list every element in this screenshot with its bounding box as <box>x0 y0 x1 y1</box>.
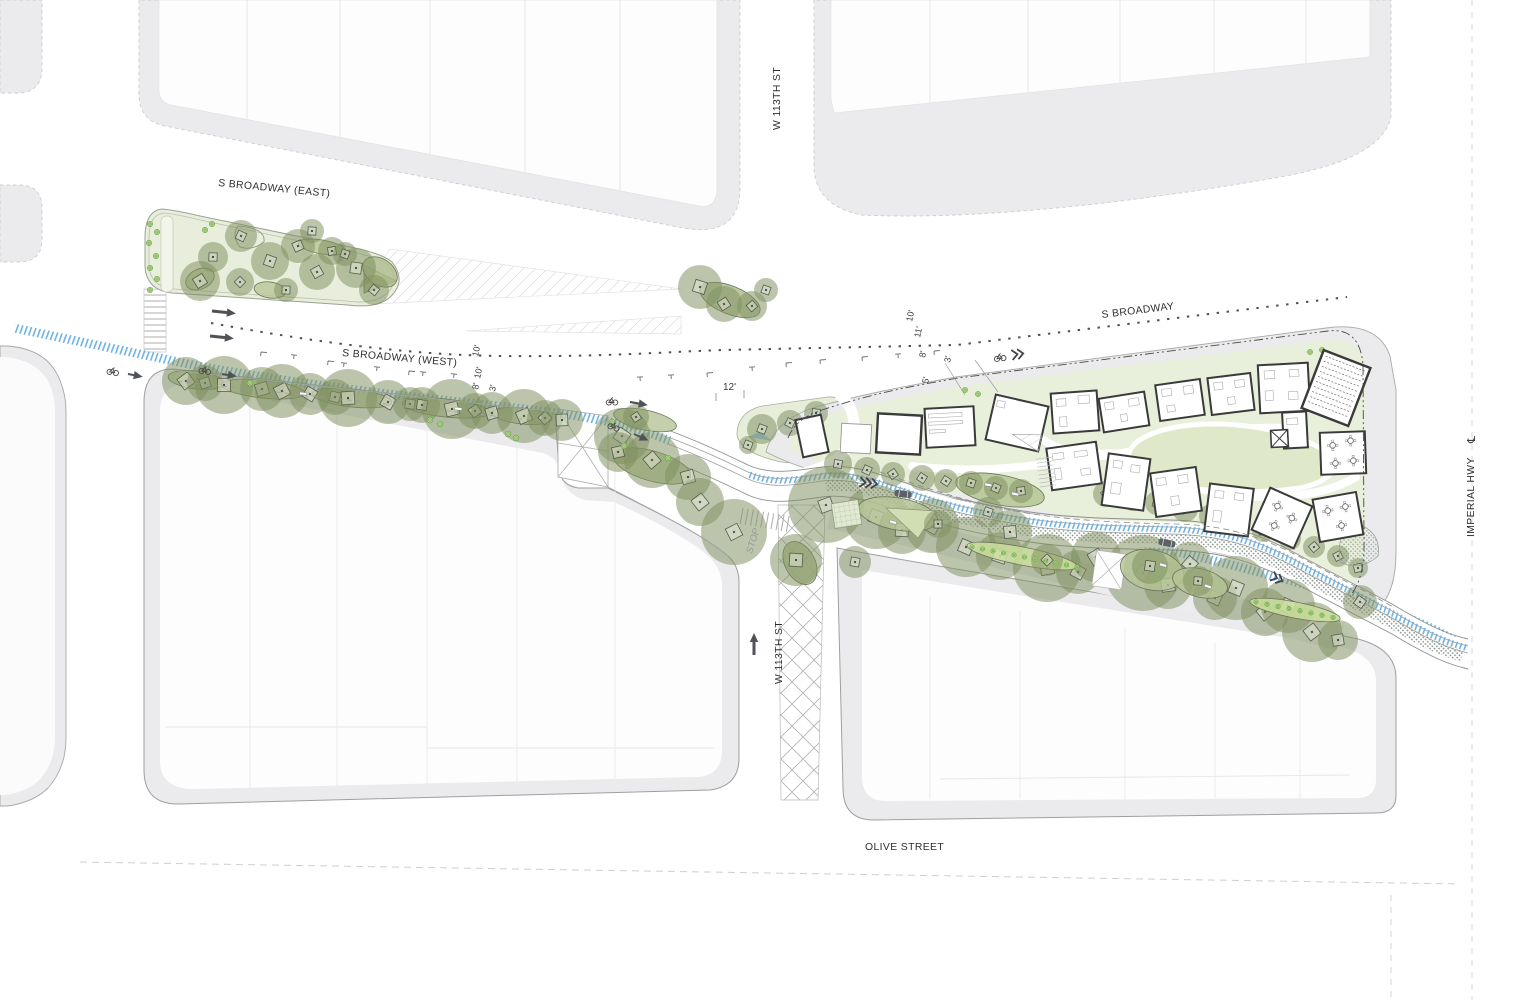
svg-text:W 113TH ST: W 113TH ST <box>774 621 785 684</box>
svg-text:OLIVE STREET: OLIVE STREET <box>865 842 944 853</box>
svg-text:IMPERIAL HWY: IMPERIAL HWY <box>1466 457 1477 537</box>
svg-text:12': 12' <box>723 382 736 393</box>
svg-text:℄: ℄ <box>1466 436 1478 444</box>
svg-text:W 113TH ST: W 113TH ST <box>772 67 783 130</box>
